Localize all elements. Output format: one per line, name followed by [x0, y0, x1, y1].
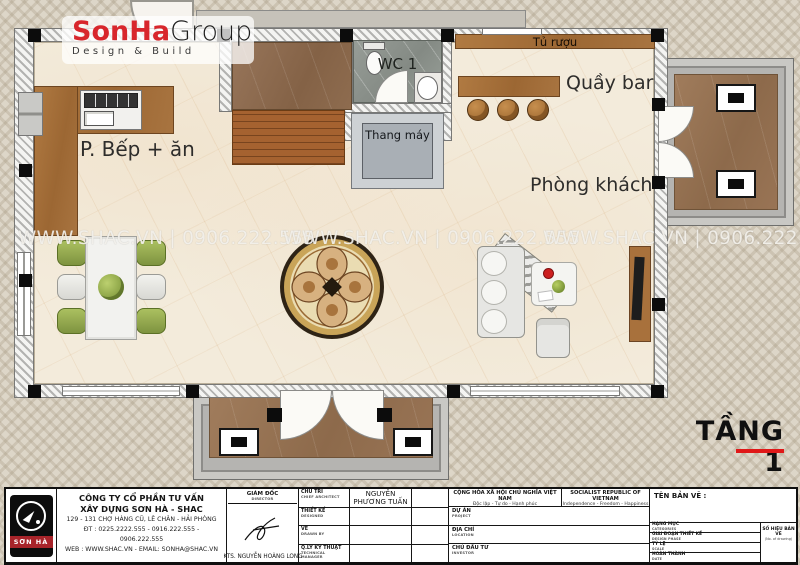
column: [651, 385, 664, 398]
title-block-logo-cell: SƠN HÀ: [6, 489, 57, 562]
director-name: KTS. NGUYỄN HOÀNG LONG: [223, 553, 302, 559]
bar-counter: [458, 76, 560, 97]
door-jamb-column: [377, 408, 392, 422]
wall-right: [654, 28, 668, 398]
brand-logo-primary: SonHa: [72, 16, 170, 47]
credits-row: CHỦ TRÌCHIEF ARCHITECT NGUYỄN PHƯƠNG TUẤ…: [299, 489, 448, 508]
bar-stool: [497, 99, 519, 121]
column-pedestal: [716, 170, 756, 198]
credits-extra: [412, 489, 448, 507]
column: [28, 385, 41, 398]
decor-plant: [552, 280, 565, 293]
credits-extra: [412, 545, 448, 562]
sofa-cushion: [481, 280, 507, 305]
drawing-info-rows: HẠNG MỤCCATEGORIES GIAI ĐOẠN THIẾT KẾDES…: [650, 523, 761, 562]
drawing-name-label: TÊN BẢN VẼ :: [650, 489, 796, 523]
window: [62, 386, 180, 396]
dining-chair: [136, 274, 166, 300]
director-cell: GIÁM ĐỐC DIRECTOR KTS. NGUYỄN HOÀNG LONG: [227, 489, 299, 562]
decor-bowl: [543, 268, 554, 279]
credits-row: Q.LÝ KỸ THUẬTTECHNICAL MANAGER: [299, 545, 448, 562]
column: [340, 29, 353, 42]
column: [441, 29, 454, 42]
drawing-number-cell: SỐ HIỆU BẢN VẼ (No. of drawing): [761, 523, 796, 562]
column-pedestal: [219, 428, 259, 456]
company-info-cell: CÔNG TY CỔ PHẦN TƯ VẤN XÂY DỰNG SƠN HÀ -…: [57, 489, 227, 562]
decor-paper: [537, 290, 553, 302]
dining-chair: [57, 308, 87, 334]
floor-plan-canvas: WC 1 Thang máy P. Bếp + ăn Tủ rượu Quầy …: [0, 0, 800, 565]
column: [186, 385, 199, 398]
watermark: WWW.SHAC.VN | 0906.222.555: [543, 228, 800, 249]
window: [470, 386, 620, 396]
column: [19, 164, 32, 177]
wooden-stairs: [232, 110, 345, 165]
toilet-tank: [363, 42, 385, 50]
project-cell: CỘNG HÒA XÃ HỘI CHỦ NGHĨA VIỆT NAM Độc l…: [449, 489, 650, 562]
armchair: [536, 318, 570, 358]
bar-stool: [527, 99, 549, 121]
title-block: SƠN HÀ CÔNG TY CỔ PHẦN TƯ VẤN XÂY DỰNG S…: [4, 487, 798, 565]
room-label-elevator: Thang máy: [351, 128, 444, 142]
director-label: GIÁM ĐỐC DIRECTOR: [228, 491, 297, 504]
credits-label: Q.LÝ KỸ THUẬTTECHNICAL MANAGER: [299, 545, 350, 562]
credits-value: [350, 545, 412, 562]
credits-extra: [412, 508, 448, 525]
column: [28, 29, 41, 42]
room-label-living: Phòng khách: [530, 174, 652, 196]
sonha-logo-icon: [16, 501, 46, 531]
sonha-badge-name: SƠN HÀ: [10, 536, 53, 548]
wc-wall-bottom: [343, 103, 452, 113]
company-address: 129 - 131 CHỢ HÀNG CŨ, LÊ CHÂN - HẢI PHÒ…: [62, 515, 221, 525]
sofa-cushion: [481, 251, 507, 276]
drawing-info-cell: TÊN BẢN VẼ : HẠNG MỤCCATEGORIES GIAI ĐOẠ…: [650, 489, 796, 562]
watermark: WWW.SHAC.VN | 0906.222.555: [283, 228, 580, 249]
room-label-wine-cabinet: Tủ rượu: [455, 35, 655, 49]
national-header-en: SOCIALIST REPUBLIC OF VIETNAM Independen…: [562, 489, 649, 506]
column-pedestal: [393, 428, 433, 456]
project-row: ĐỊA CHỈLOCATION: [449, 526, 649, 545]
dining-chair: [57, 274, 87, 300]
credits-label: VẼDRAWN BY: [299, 526, 350, 543]
drawing-info-row: HOÀN THÀNHDATE: [650, 553, 760, 562]
company-name-line2: XÂY DỰNG SƠN HÀ - SHAC: [62, 504, 221, 515]
company-web: WEB : WWW.SHAC.VN - EMAIL: SONHA@SHAC.VN: [62, 545, 221, 555]
floor-title: TẦNG 1: [672, 416, 784, 478]
window-marker: [482, 28, 542, 35]
room-label-bar: Quầy bar: [566, 72, 653, 94]
column: [19, 274, 32, 287]
wc-sink-basin: [417, 76, 438, 100]
watermark: WWW.SHAC.VN | 0906.222.555: [18, 228, 315, 249]
column: [651, 29, 664, 42]
stove-icon: [84, 93, 138, 108]
sink-icon: [84, 111, 114, 126]
brand-logo-tagline: Design & Build: [72, 46, 254, 57]
column: [652, 98, 665, 111]
drawing-info-row: GIAI ĐOẠN THIẾT KẾDESIGN PHASE: [650, 533, 760, 543]
project-row: DỰ ÁNPROJECT: [449, 507, 649, 526]
sonha-logo-dot: [36, 520, 40, 524]
drawing-info-bottom: HẠNG MỤCCATEGORIES GIAI ĐOẠN THIẾT KẾDES…: [650, 523, 796, 562]
column: [652, 298, 665, 311]
credits-row: THIẾT KẾDESIGNED: [299, 508, 448, 526]
credits-value: [350, 508, 412, 525]
national-header-vi: CỘNG HÒA XÃ HỘI CHỦ NGHĨA VIỆT NAM Độc l…: [449, 489, 562, 506]
credits-value: NGUYỄN PHƯƠNG TUẤN: [350, 489, 412, 507]
room-label-wc: WC 1: [353, 55, 442, 73]
sonha-badge: SƠN HÀ: [10, 495, 53, 557]
sonha-logo-triangle: [23, 508, 35, 523]
director-signature: [241, 516, 285, 542]
credits-label: CHỦ TRÌCHIEF ARCHITECT: [299, 489, 350, 507]
fridge-icon: [18, 92, 43, 136]
wall-left: [14, 28, 34, 398]
credits-value: [350, 526, 412, 543]
credits-grid: CHỦ TRÌCHIEF ARCHITECT NGUYỄN PHƯƠNG TUẤ…: [299, 489, 449, 562]
credits-row: VẼDRAWN BY: [299, 526, 448, 544]
room-label-kitchen: P. Bếp + ăn: [80, 137, 195, 161]
column: [447, 385, 460, 398]
credits-extra: [412, 526, 448, 543]
table-plant: [98, 274, 124, 300]
floor-medallion: [279, 234, 385, 340]
dining-chair: [136, 308, 166, 334]
sofa-cushion: [481, 309, 507, 334]
brand-logo-secondary: Group: [170, 16, 252, 47]
company-name-line1: CÔNG TY CỔ PHẦN TƯ VẤN: [62, 493, 221, 504]
column-pedestal: [716, 84, 756, 112]
national-header: CỘNG HÒA XÃ HỘI CHỦ NGHĨA VIỆT NAM Độc l…: [449, 489, 649, 507]
column: [652, 176, 665, 189]
brand-logo: SonHaGroup Design & Build: [62, 16, 254, 64]
window: [17, 252, 31, 336]
credits-label: THIẾT KẾDESIGNED: [299, 508, 350, 525]
company-phone: ĐT : 0225.2222.555 - 0916.222.555 - 0906…: [62, 525, 221, 545]
project-row: CHỦ ĐẦU TƯINVESTOR: [449, 544, 649, 562]
floor-title-underline: [736, 449, 784, 453]
bar-stool: [467, 99, 489, 121]
door-jamb-column: [267, 408, 282, 422]
